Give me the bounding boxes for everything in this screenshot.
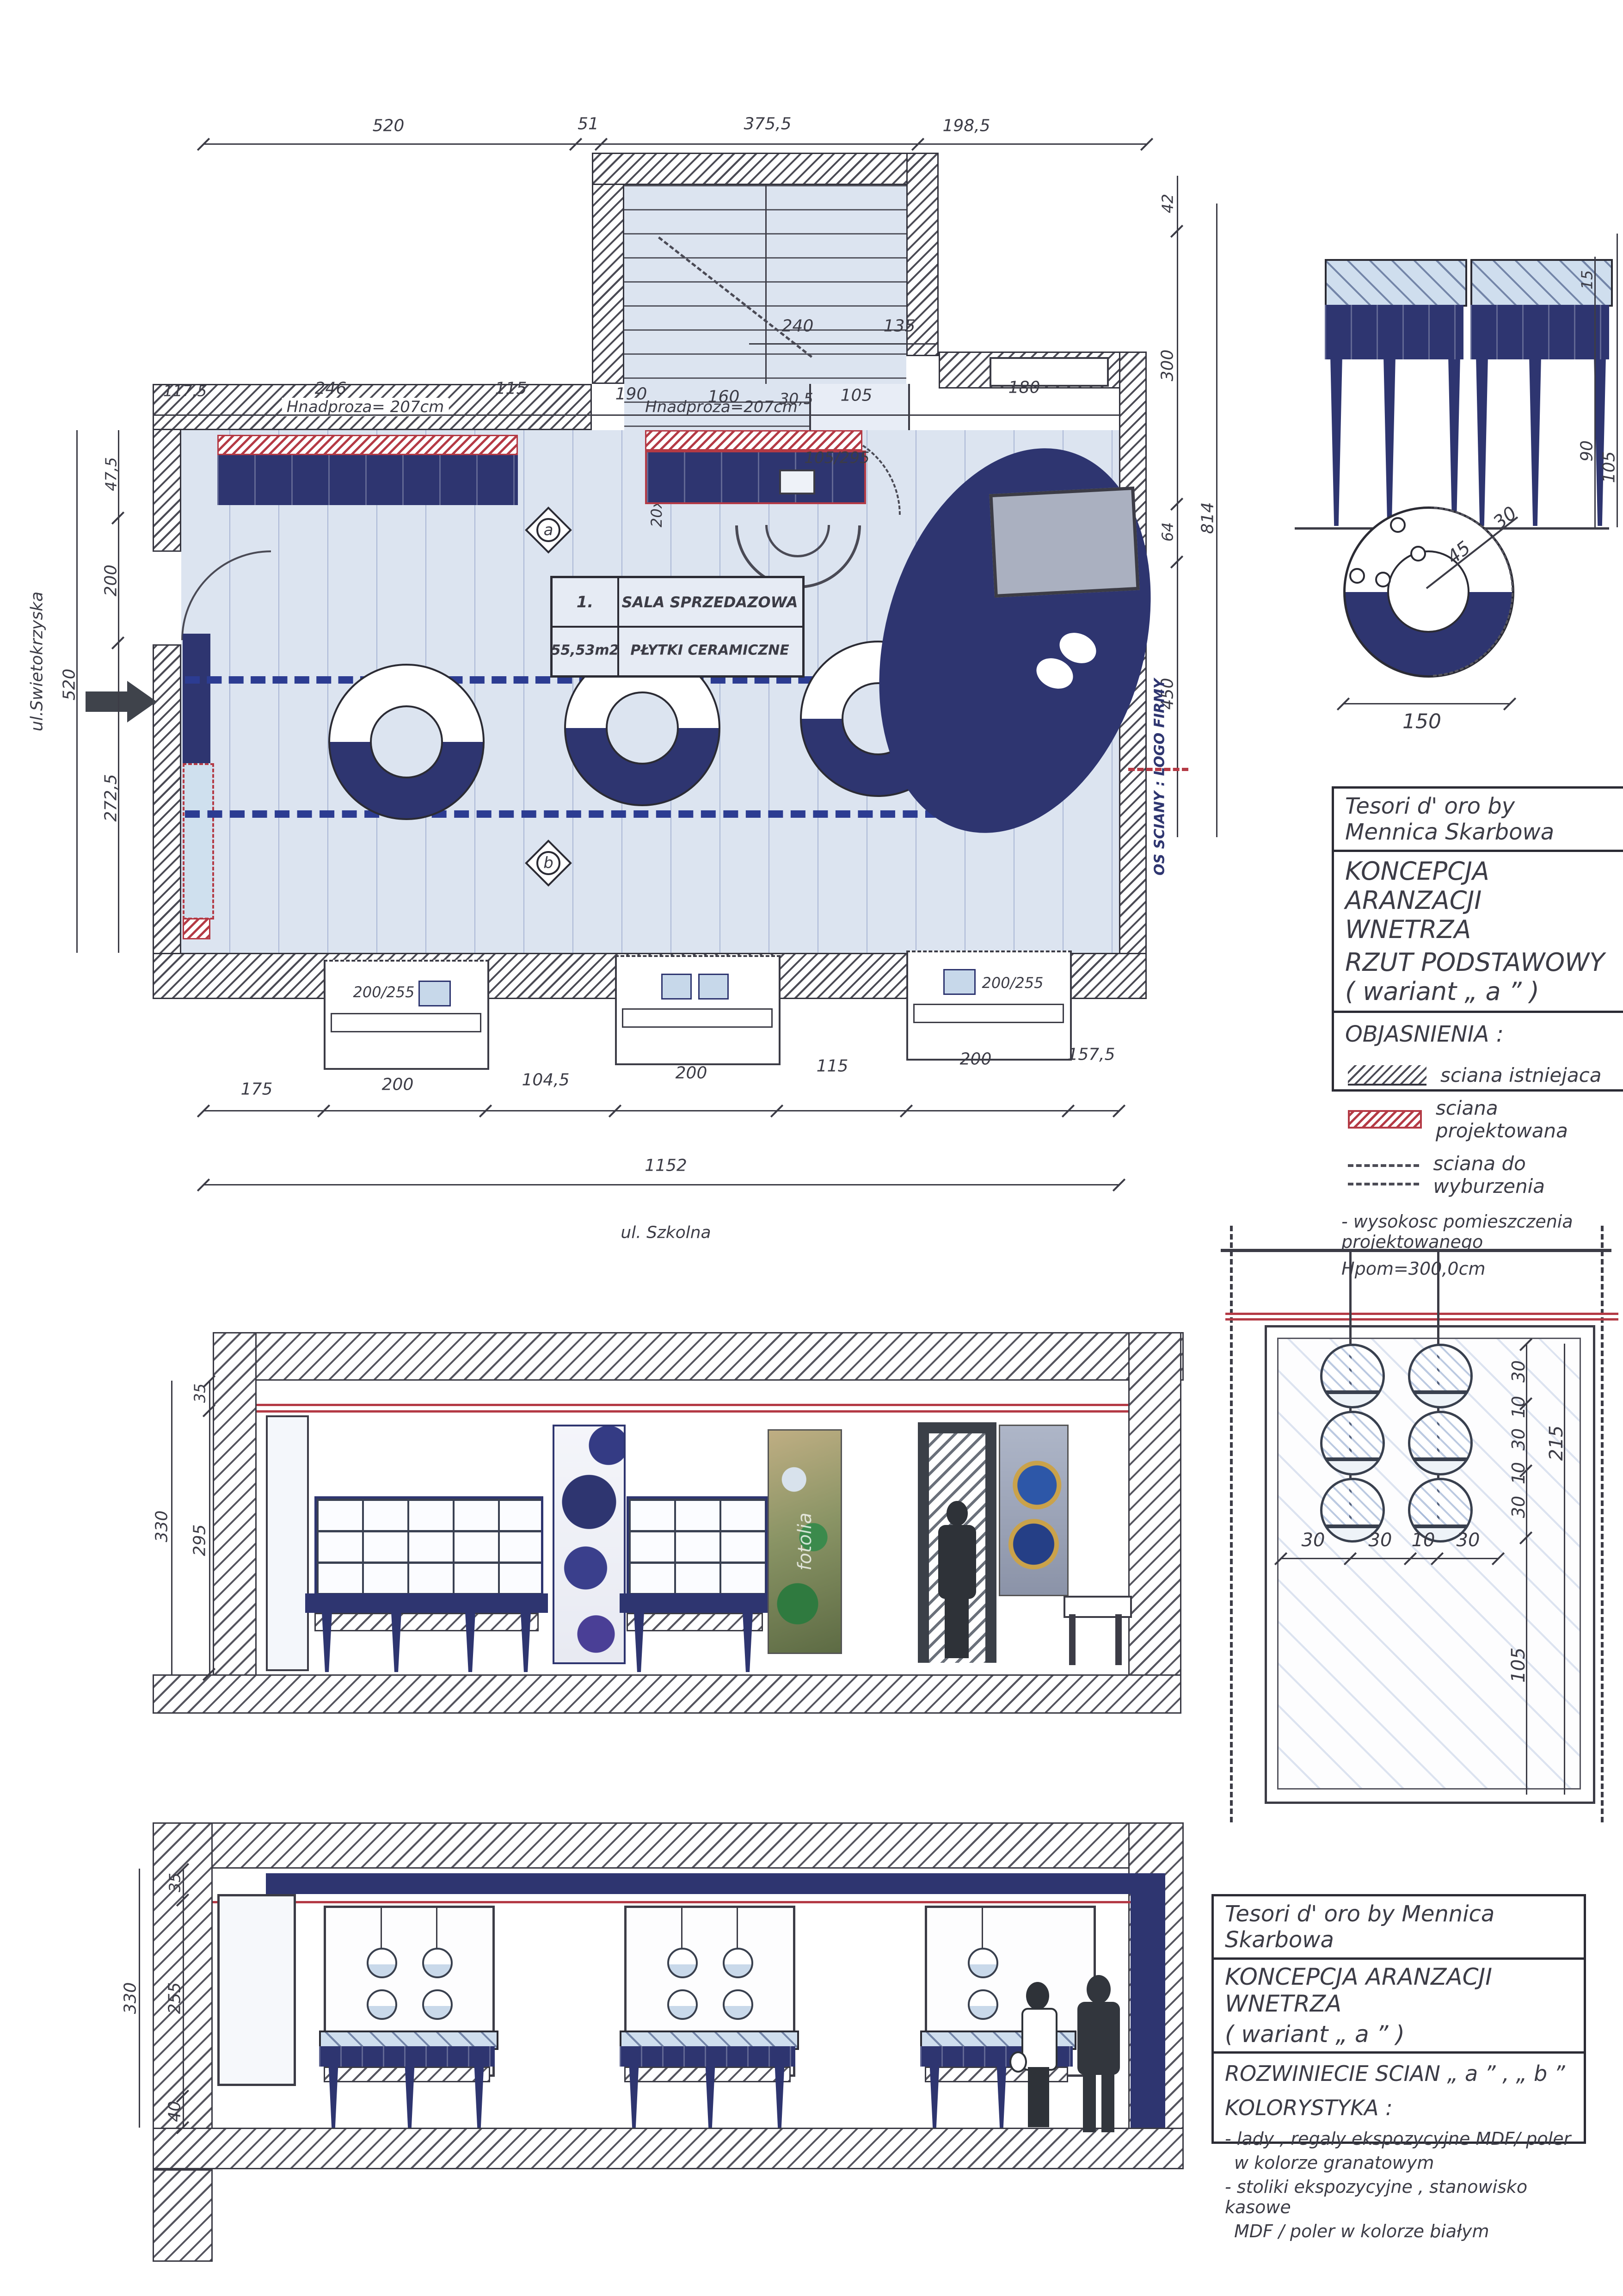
dim-label: 135 [884, 317, 916, 336]
dim-line-stairs [749, 343, 939, 345]
photo-watermark: fotolia [794, 1512, 816, 1570]
figure-woman [1015, 1982, 1061, 2130]
dim-label: 35 [191, 1383, 209, 1403]
dim-label: 198,5 [942, 117, 990, 136]
dim-label: 240 [782, 317, 814, 336]
table-leg [1380, 359, 1399, 526]
ring-counter-hole [370, 705, 443, 778]
table-leg [1445, 359, 1463, 526]
secA-left-glass [266, 1415, 309, 1671]
dim-label: 115 [817, 1057, 848, 1076]
table-leg [1526, 359, 1544, 526]
entrance-arrow [86, 691, 127, 712]
secA-floor [153, 1674, 1181, 1714]
projected-wall-strip-1 [217, 435, 518, 455]
secB-redline [213, 1901, 1131, 1903]
legend-label: sciana projektowana [1436, 1097, 1623, 1142]
dim-line-detail-outer [1617, 234, 1618, 527]
detail-disc [1320, 1411, 1385, 1475]
dim-label: 180 [1008, 378, 1040, 397]
secB-street-window [217, 1894, 296, 2086]
hanging-disc [968, 1989, 998, 2020]
room-finish: PŁYTKI CERAMICZNE [630, 642, 789, 659]
hanging-rod [737, 1908, 738, 1950]
secB-header-band [266, 1873, 1165, 1894]
dim-label: 814 [1199, 502, 1217, 534]
hanging-disc [422, 1948, 453, 1978]
detail-dash-left [1230, 1226, 1233, 1822]
brand-name: Tesori d' oro by Mennica Skarbowa [1214, 1896, 1584, 1957]
person-silhouette-legs [945, 1598, 969, 1658]
dim-label: 90 [1578, 440, 1597, 462]
room-name: SALA SPRZEDAZOWA [622, 593, 798, 611]
color-note: MDF / poler w kolorze białym [1234, 2221, 1584, 2241]
dim-line-detail-bottom [1281, 1558, 1498, 1559]
hanging-rod [982, 1908, 983, 1950]
room-table: 1. SALA SPRZEDAZOWA 55,53m2 PŁYTKI CERAM… [550, 576, 805, 678]
cash-desk-top [989, 487, 1139, 598]
wall-left [153, 384, 181, 999]
legend-swatch-projected [1348, 1110, 1422, 1129]
dim-label: 520 [60, 669, 79, 701]
secA-bench-leg [1115, 1614, 1122, 1665]
entrance-arrow-head [127, 681, 157, 722]
secA-table-top-1 [305, 1593, 548, 1613]
dim-label: 30 [1508, 1428, 1529, 1450]
project-title-1: KONCEPCJA ARANZACJI WNETRZA [1334, 855, 1623, 946]
title-row: KONCEPCJA ARANZACJI WNETRZA RZUT PODSTAW… [1334, 852, 1623, 1013]
dim-label: 51 [578, 115, 599, 134]
hanging-disc [723, 1989, 753, 2020]
secA-shadow-2 [627, 1613, 763, 1631]
dim-label: 175 [241, 1080, 273, 1099]
legend-item-existing: sciana istniejaca [1348, 1064, 1623, 1086]
figure-legs [1101, 2074, 1114, 2132]
secA-shadow-1 [314, 1613, 539, 1631]
ring-hole-dot [1349, 568, 1365, 584]
window-glazing-2a [661, 974, 692, 1000]
counter-ring [1343, 506, 1514, 678]
dim-label: 150 [1402, 710, 1441, 734]
figure-bag [1009, 2051, 1027, 2073]
dim-label: 330 [121, 1982, 140, 2014]
secA-shelving-2 [627, 1496, 768, 1598]
dim-label-total: 1152 [645, 1156, 687, 1175]
stair-divider [765, 185, 767, 384]
legend-title: OBJASNIENIA : [1334, 1013, 1623, 1052]
dim-line-bottom-1 [203, 1110, 1119, 1111]
window-glazing-1 [418, 981, 451, 1006]
height-note-2: Hpom=300,0cm [1341, 1259, 1623, 1279]
hanging-disc [422, 1989, 453, 2020]
title-block-sections: Tesori d' oro by Mennica Skarbowa KONCEP… [1211, 1894, 1586, 2144]
dim-label: 160 [708, 388, 740, 407]
colors-title: KOLORYSTYKA : [1214, 2091, 1584, 2125]
axis-red-dash [1128, 768, 1188, 771]
title-row: KONCEPCJA ARANZACJI WNETRZA ( wariant „ … [1214, 1960, 1584, 2054]
display-table-body-1 [1325, 305, 1463, 359]
dim-label: 104,5 [522, 1071, 569, 1090]
secB-floor [153, 2128, 1184, 2169]
dim-label: 30 [1508, 1496, 1529, 1518]
secA-table-top-2 [620, 1593, 772, 1613]
person-silhouette-body [938, 1525, 976, 1599]
legend-swatch-demolition [1348, 1164, 1419, 1185]
brand-row: Tesori d' oro by Mennica Skarbowa [1334, 789, 1623, 852]
dim-line-top [203, 143, 1147, 145]
demolition-line-2 [185, 810, 985, 818]
door-opening-left [153, 550, 181, 646]
dim-label: 190 [615, 385, 647, 404]
secA-redline [257, 1404, 1128, 1406]
secA-wall-right [1128, 1332, 1181, 1684]
glass-case-left [183, 763, 214, 920]
dim-label: 30,5 [779, 390, 813, 408]
person-silhouette-head [947, 1501, 968, 1526]
secA-wall-left [213, 1332, 257, 1684]
dim-line-right-inner [1177, 176, 1178, 837]
window-label: 200/255 [353, 983, 415, 1001]
ring-hole-dot [1410, 546, 1426, 562]
color-note: w kolorze granatowym [1234, 2153, 1584, 2173]
dim-line-detail-inner [1594, 257, 1596, 527]
ring-hole-dot [1375, 572, 1391, 587]
dim-line-counter [1343, 703, 1510, 704]
ring-counter-hole [606, 691, 679, 765]
detail-disc [1408, 1411, 1473, 1475]
wall-annex-top [592, 153, 939, 185]
dim-label: 200 [960, 1050, 992, 1069]
detail-disc [1408, 1344, 1473, 1408]
room-number: 1. [577, 593, 594, 611]
project-title-1: KONCEPCJA ARANZACJI WNETRZA [1214, 1962, 1584, 2019]
projected-wall-strip-2 [645, 430, 862, 451]
dim-label: 115 [495, 379, 527, 398]
dim-label: 10 [1508, 1396, 1529, 1418]
dim-label: 330 [153, 1511, 172, 1543]
projected-strip-left [183, 918, 210, 939]
subtitle: ROZWINIECIE SCIAN „ a ” , „ b ” [1214, 2054, 1584, 2091]
dim-line-wall-top [153, 414, 592, 416]
ring-counter-1 [328, 664, 485, 820]
marker-letter: a [536, 518, 560, 542]
dim-label: 117,5 [163, 382, 207, 400]
window-label: 200/255 [982, 974, 1044, 992]
wall-case-1 [217, 455, 518, 505]
curved-display-box [779, 469, 815, 494]
hanging-disc [723, 1948, 753, 1978]
secB-ceiling [153, 1822, 1184, 1869]
color-note: - stoliki ekspozycyjne , stanowisko kaso… [1225, 2177, 1584, 2217]
detail-redline [1225, 1313, 1618, 1315]
ring-hole-dot [1390, 517, 1406, 533]
figure-torso [1077, 2002, 1120, 2075]
hanging-rod [681, 1908, 682, 1950]
figure-legs [1083, 2074, 1096, 2132]
dim-label: 10 [1508, 1462, 1529, 1484]
dim-label: 295 [191, 1524, 209, 1556]
legend-label: sciana istniejaca [1440, 1064, 1601, 1086]
marker-letter: b [536, 851, 560, 875]
height-note-1: - wysokosc pomieszczenia projektowanego [1341, 1211, 1623, 1252]
dim-label: 255 [166, 1982, 184, 2014]
wall-annex-left [592, 153, 624, 384]
secA-doorway [918, 1422, 996, 1663]
dim-label: 30 [1508, 1360, 1529, 1383]
table-leg [1327, 359, 1346, 526]
secA-photo-green: fotolia [768, 1429, 842, 1654]
detail-disc [1320, 1344, 1385, 1408]
window-sill-3 [913, 1004, 1064, 1023]
dim-line-stair-bottom [592, 414, 1119, 416]
window-glazing-3 [943, 969, 976, 995]
dim-label: 520 [373, 117, 405, 136]
window-glazing-2b [698, 974, 729, 1000]
dim-label: 35 [166, 1873, 184, 1892]
drawing-sheet: 20x18x28 [0, 0, 1623, 2296]
project-title-2: ( wariant „ a ” ) [1214, 2019, 1584, 2049]
dim-line-left-inner [118, 430, 119, 953]
room-area: 55,53m2 [551, 642, 619, 659]
dim-label: 10 [1412, 1530, 1435, 1551]
dim-label: 200 [676, 1064, 707, 1083]
display-table-body-2 [1470, 305, 1609, 359]
wall-case-left [183, 634, 210, 763]
dim-label: 157,5 [1067, 1045, 1115, 1064]
detail-top-line [1221, 1249, 1611, 1252]
hanging-disc [667, 1948, 698, 1978]
axis-label: OS SCIANY : LOGO FIRMY [1152, 679, 1168, 876]
figure-head [1026, 1982, 1049, 2010]
color-note: - lady , regaly ekspozycyjne MDF/ poler [1225, 2129, 1584, 2149]
hanging-disc [367, 1948, 397, 1978]
title-block-plan: Tesori d' oro by Mennica Skarbowa KONCEP… [1332, 786, 1623, 1092]
legend-item-projected: sciana projektowana [1348, 1097, 1623, 1142]
dim-label: 105 [1600, 451, 1619, 483]
legend-label: sciana do wyburzenia [1433, 1152, 1623, 1197]
dim-line-bottom-2 [203, 1184, 1119, 1185]
secA-photo-rings [553, 1425, 626, 1664]
dim-label: 15 [1578, 270, 1596, 290]
dim-label: 375,5 [744, 115, 791, 134]
lintel-label-1: Hnadproza= 207cm [282, 398, 449, 416]
detail-dash-right [1601, 1226, 1604, 1822]
brand-name: Tesori d' oro by Mennica Skarbowa [1334, 789, 1623, 850]
figure-man [1073, 1975, 1126, 2132]
hanging-disc [968, 1948, 998, 1978]
dim-label: 47,5 [102, 457, 120, 491]
dim-label: 64 [1159, 522, 1177, 542]
secA-photo-gems [999, 1425, 1069, 1596]
window-sill-1 [331, 1013, 481, 1032]
door-label: 105/295 [804, 449, 869, 467]
window-sill-2 [622, 1008, 773, 1028]
secB-table-body-2 [620, 2046, 795, 2067]
display-table-glass-1 [1325, 259, 1467, 307]
dim-label: 105 [841, 386, 873, 405]
secA-ceiling [213, 1332, 1184, 1381]
secB-wall-left-lower [153, 2169, 213, 2262]
dim-line-detail-right-outer [1564, 1344, 1565, 1795]
dim-label: 40 [166, 2101, 184, 2122]
dim-label: 272,5 [102, 774, 121, 821]
dim-label: 200 [102, 565, 121, 597]
secB-table-body-1 [319, 2046, 495, 2067]
hanging-rod [436, 1908, 437, 1950]
dim-label: 105 [1508, 1648, 1529, 1683]
dim-label: 200 [382, 1075, 414, 1094]
secA-bench-leg [1069, 1614, 1076, 1665]
hanging-disc [367, 1989, 397, 2020]
hanging-disc [667, 1989, 698, 2020]
street-left-label: ul.Swietokrzyska [28, 592, 47, 731]
dim-label: 42 [1159, 194, 1177, 213]
window-top-right [990, 357, 1109, 387]
dim-label: 246 [315, 379, 347, 398]
dim-label-total: 215 [1546, 1426, 1567, 1461]
dim-label: 30 [1369, 1530, 1392, 1551]
legend-swatch-existing [1348, 1065, 1426, 1086]
brand-row: Tesori d' oro by Mennica Skarbowa [1214, 1896, 1584, 1960]
secA-shelving-1 [314, 1496, 543, 1598]
project-title-2: RZUT PODSTAWOWY ( wariant „ a ” ) [1334, 946, 1623, 1008]
street-bottom-label: ul. Szkolna [621, 1223, 711, 1242]
legend-item-demolition: sciana do wyburzenia [1348, 1152, 1623, 1197]
secB-right-band [1131, 1873, 1165, 2128]
dim-label: 300 [1158, 350, 1177, 382]
dim-label: 30 [1302, 1530, 1325, 1551]
figure-legs [1028, 2067, 1049, 2127]
room-table-divider-h [553, 626, 802, 628]
hanging-rod [381, 1908, 382, 1950]
table-leg [1473, 359, 1491, 526]
dim-label: 30 [1457, 1530, 1480, 1551]
figure-head [1087, 1975, 1111, 2004]
